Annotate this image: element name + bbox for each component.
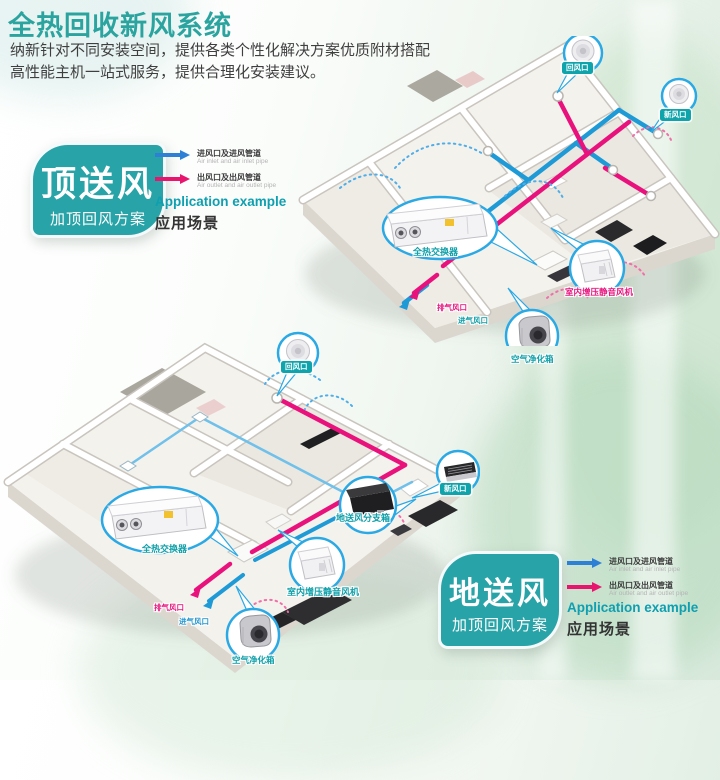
- fresh-diffuser-art: [670, 85, 689, 104]
- legend-outlet-row: 出风口及出风管道 Air outlet and air outlet pipe: [155, 173, 276, 190]
- scheme-card-floor-supply: 地送风 加顶回风方案: [438, 551, 562, 649]
- outlet-arrow-icon: [155, 174, 191, 184]
- application-example-cn: 应用场景: [567, 618, 698, 639]
- legend-inlet-en: Air inlet and air inlet pipe: [197, 158, 268, 166]
- scheme-bottom-plan: 加顶回风方案: [441, 614, 559, 635]
- label-bottom-heat-exchanger: 全热交换器: [142, 542, 187, 555]
- legend-outlet-en: Air outlet and air outlet pipe: [609, 590, 688, 598]
- legend-inlet-cn: 进风口及进风管道: [609, 557, 680, 566]
- label-top-booster-fan: 室内增压静音风机: [565, 286, 633, 298]
- return-diffuser-art: [287, 340, 310, 363]
- page-title: 全热回收新风系统: [8, 4, 232, 43]
- scheme-bottom-name: 地送风: [441, 568, 559, 613]
- booster-fan-art: [578, 250, 615, 282]
- booster-fan-art: [298, 547, 335, 579]
- house-bottom-svg: [0, 320, 480, 680]
- air-purifier-art: [519, 316, 550, 346]
- label-bottom-exhaust-vent: 排气风口: [154, 602, 184, 613]
- application-example-top: Application example 应用场景: [155, 194, 286, 233]
- label-top-exhaust-vent: 排气风口: [437, 302, 467, 313]
- inlet-arrow-icon: [155, 150, 191, 160]
- label-top-intake-vent: 进气风口: [458, 315, 488, 326]
- legend-inlet-row: 进风口及进风管道 Air inlet and air inlet pipe: [567, 557, 688, 574]
- closet-room: [407, 70, 463, 102]
- house-diagram-floor-supply: [0, 320, 480, 680]
- label-bottom-intake-vent: 进气风口: [179, 616, 209, 627]
- return-diffuser-art: [572, 40, 594, 62]
- label-bottom-air-purifier: 空气净化箱: [232, 654, 275, 666]
- house-top-svg: [295, 36, 720, 346]
- label-bottom-booster-fan: 室内增压静音风机: [287, 585, 359, 598]
- legend-inlet-en: Air inlet and air inlet pipe: [609, 566, 680, 574]
- label-bottom-fresh-air: 新风口: [440, 483, 471, 495]
- scheme-card-top-supply: 顶送风 加顶回风方案: [30, 142, 166, 238]
- legend-bottom: 进风口及进风管道 Air inlet and air inlet pipe 出风…: [567, 557, 688, 605]
- house-diagram-top-supply: [295, 36, 720, 346]
- application-example-bottom: Application example 应用场景: [567, 600, 698, 639]
- label-bottom-return-air: 回风口: [281, 361, 312, 373]
- legend-top: 进风口及进风管道 Air inlet and air inlet pipe 出风…: [155, 149, 276, 197]
- outlet-arrow-icon: [567, 582, 603, 592]
- legend-outlet-row: 出风口及出风管道 Air outlet and air outlet pipe: [567, 581, 688, 598]
- inlet-arrow-icon: [567, 558, 603, 568]
- label-top-return-air: 回风口: [562, 62, 593, 74]
- label-top-fresh-air: 新风口: [660, 109, 691, 121]
- application-example-en: Application example: [567, 600, 698, 615]
- scheme-top-name: 顶送风: [33, 156, 163, 207]
- label-top-heat-exchanger: 全热交换器: [413, 245, 458, 258]
- legend-inlet-row: 进风口及进风管道 Air inlet and air inlet pipe: [155, 149, 276, 166]
- scheme-top-plan: 加顶回风方案: [33, 208, 163, 229]
- application-example-cn: 应用场景: [155, 212, 286, 233]
- legend-inlet-cn: 进风口及进风管道: [197, 149, 268, 158]
- air-purifier-art: [240, 615, 271, 647]
- legend-outlet-en: Air outlet and air outlet pipe: [197, 182, 276, 190]
- legend-outlet-cn: 出风口及出风管道: [197, 173, 276, 182]
- legend-outlet-cn: 出风口及出风管道: [609, 581, 688, 590]
- label-bottom-branch-box: 地送风分支箱: [336, 511, 390, 524]
- application-example-en: Application example: [155, 194, 286, 209]
- label-top-air-purifier: 空气净化箱: [511, 353, 554, 365]
